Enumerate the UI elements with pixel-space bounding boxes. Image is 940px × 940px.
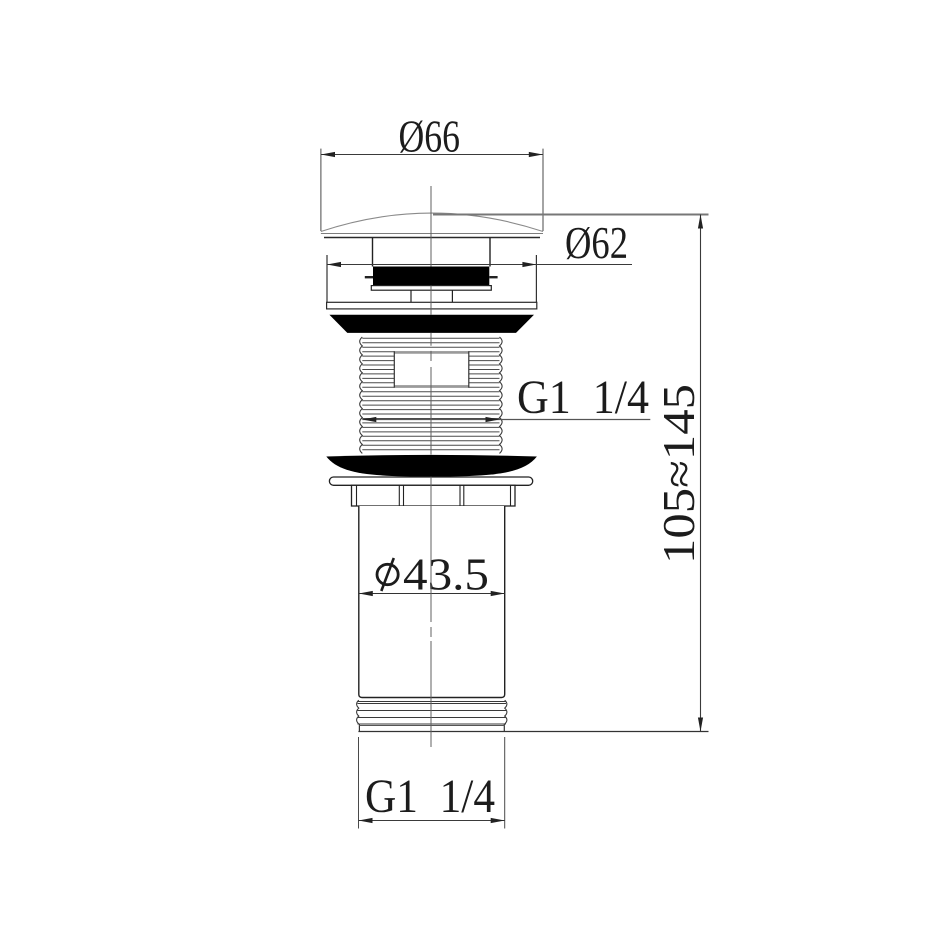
svg-text:Ø62: Ø62 [565, 218, 628, 268]
svg-text:G1 1/4: G1 1/4 [365, 770, 495, 823]
svg-text:105≈145: 105≈145 [654, 384, 704, 564]
svg-text:G1 1/4: G1 1/4 [517, 371, 649, 424]
svg-text:43.5: 43.5 [403, 550, 489, 600]
svg-text:Ø66: Ø66 [398, 112, 460, 162]
